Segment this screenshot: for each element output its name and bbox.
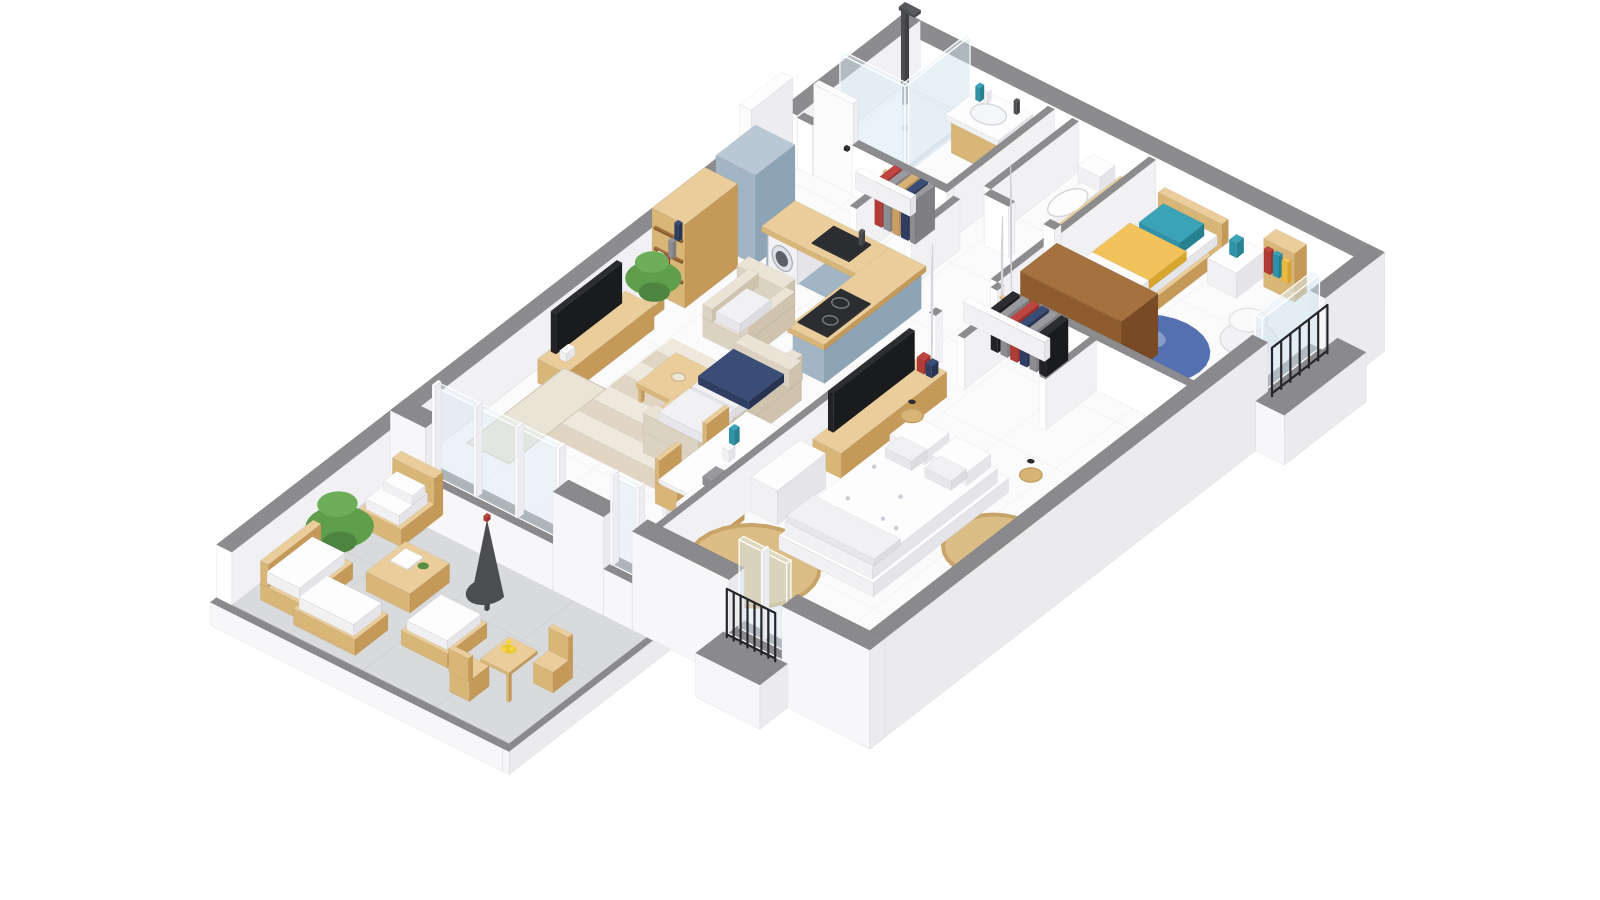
- bookshelf-book-4: [674, 220, 682, 242]
- bathroom-door: [814, 80, 859, 195]
- bedroom1-book-3: [1282, 257, 1292, 284]
- bedroom1-book-1: [1264, 246, 1274, 275]
- wc-door: [1011, 164, 1012, 290]
- bath-bottle-2: [984, 89, 991, 104]
- sliding-door-mullion-2: [474, 401, 483, 498]
- terrace-door-mullion-1: [610, 469, 619, 566]
- dining-bottle: [729, 424, 740, 446]
- floorplan-svg: [0, 0, 1600, 900]
- master-lamp-2: [1020, 468, 1043, 482]
- bedroom1-lamp: [1229, 234, 1244, 258]
- coffee-table-bowl: [672, 373, 686, 381]
- master-lamp-1: [901, 409, 924, 423]
- bookshelf-book-3: [668, 238, 676, 260]
- terrace-table-plant: [418, 562, 429, 569]
- sliding-door-glass-2: [477, 404, 520, 516]
- vanity-faucet: [1014, 98, 1020, 115]
- bathroom-door-handle: [844, 145, 850, 152]
- kitchen-faucet: [859, 229, 865, 247]
- bath-bottle-1: [975, 83, 984, 102]
- sliding-door-mullion-1: [432, 380, 441, 477]
- bedroom1-book-2: [1273, 251, 1283, 279]
- master-door: [931, 244, 932, 366]
- sliding-door-mullion-3: [515, 421, 524, 518]
- floorplan-viewport: [0, 0, 1600, 900]
